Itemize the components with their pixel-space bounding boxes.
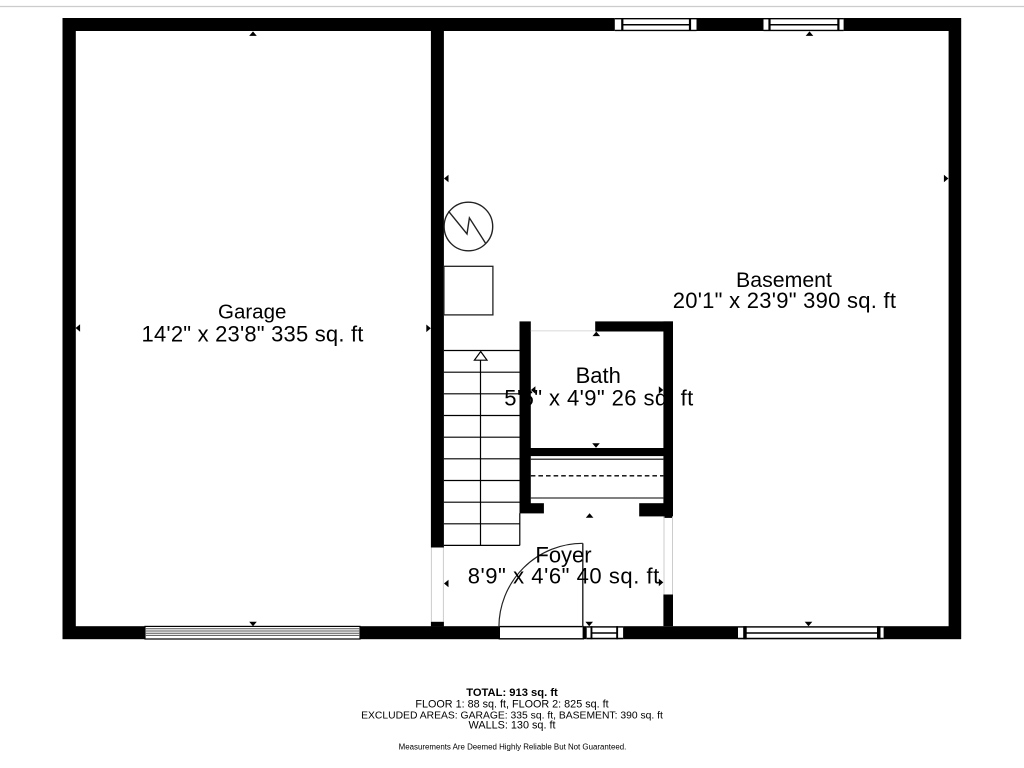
svg-text:5'6" x 4'9" 26 sq. ft: 5'6" x 4'9" 26 sq. ft [504, 386, 693, 411]
svg-text:8'9" x 4'6" 40 sq. ft: 8'9" x 4'6" 40 sq. ft [468, 563, 660, 588]
svg-text:Measurements Are Deemed Highly: Measurements Are Deemed Highly Reliable … [399, 742, 627, 751]
svg-text:Bath: Bath [576, 363, 621, 388]
svg-text:14'2" x 23'8" 335 sq. ft: 14'2" x 23'8" 335 sq. ft [142, 322, 364, 347]
svg-text:20'1" x 23'9" 390 sq. ft: 20'1" x 23'9" 390 sq. ft [673, 288, 897, 313]
svg-text:WALLS: 130 sq. ft: WALLS: 130 sq. ft [469, 720, 556, 732]
svg-text:TOTAL: 913 sq. ft: TOTAL: 913 sq. ft [466, 687, 558, 699]
svg-text:FLOOR 1: 88 sq. ft, FLOOR 2: 8: FLOOR 1: 88 sq. ft, FLOOR 2: 825 sq. ft [415, 699, 608, 711]
svg-text:Garage: Garage [218, 301, 286, 324]
